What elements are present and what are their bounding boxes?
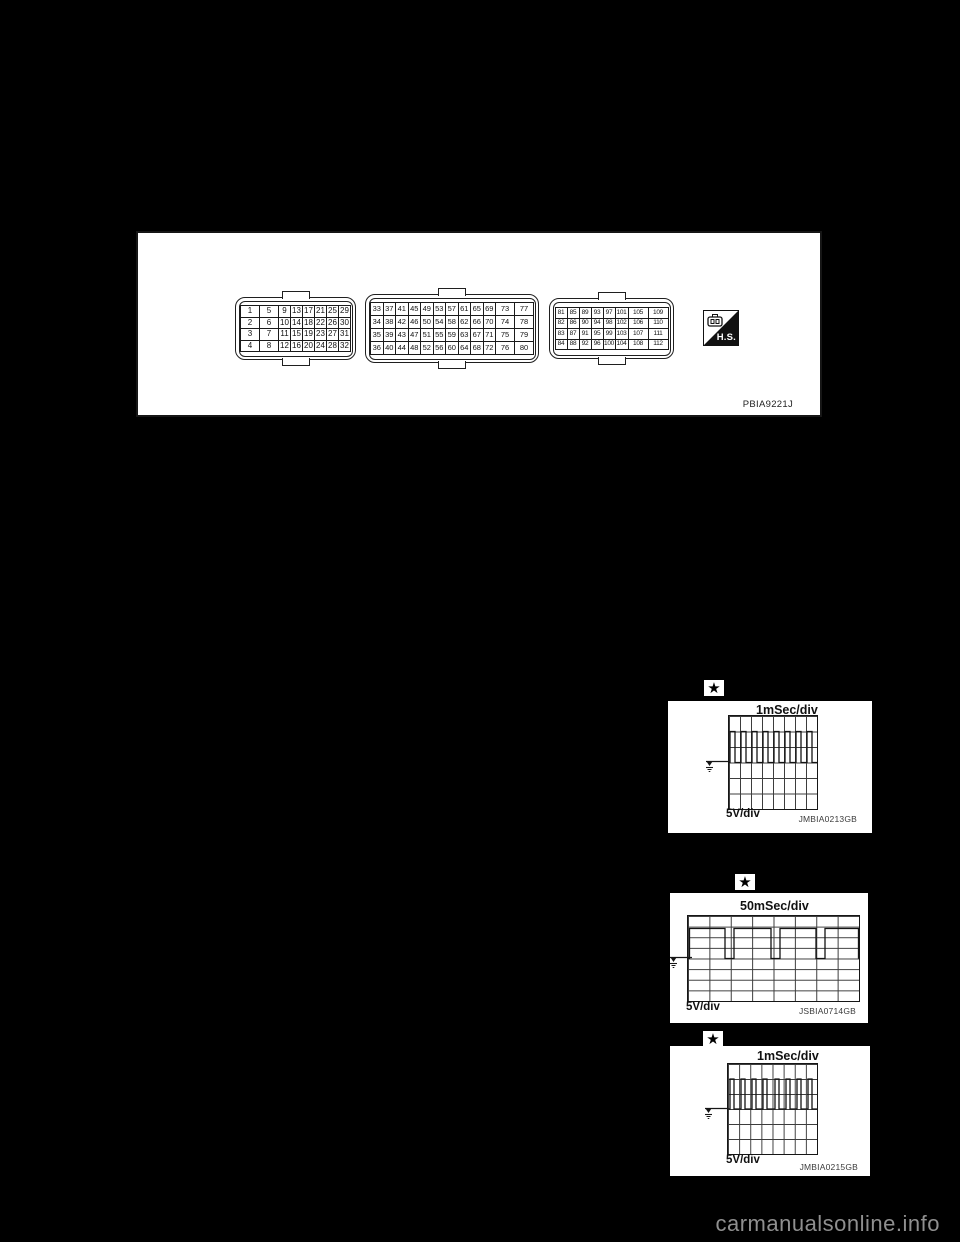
pin-14: 14 — [291, 317, 303, 329]
pin-23: 23 — [315, 329, 327, 341]
pin-76: 76 — [496, 342, 515, 355]
ecm-connector-c: 8185899397101105109828690949810210611083… — [549, 298, 674, 359]
pin-39: 39 — [383, 329, 396, 342]
pin-27: 27 — [327, 329, 339, 341]
pin-26: 26 — [327, 317, 339, 329]
pin-98: 98 — [603, 318, 615, 329]
pin-92: 92 — [579, 339, 591, 350]
pin-54: 54 — [433, 316, 446, 329]
oscilloscope-panel-2: 50mSec/div 5V/div JSBIA0714GB — [670, 893, 868, 1023]
pin-25: 25 — [327, 306, 339, 318]
pin-69: 69 — [483, 303, 496, 316]
pin-53: 53 — [433, 303, 446, 316]
pin-49: 49 — [421, 303, 434, 316]
oscilloscope-panel-3: 1mSec/div 5V/div JMBIA0215GB — [670, 1046, 870, 1176]
oscilloscope-panel-1: 1mSec/div 5V/div JMBIA0213GB — [668, 701, 872, 833]
volts-per-div-label: 5V/div — [726, 808, 760, 820]
pin-75: 75 — [496, 329, 515, 342]
pin-57: 57 — [446, 303, 459, 316]
pin-46: 46 — [408, 316, 421, 329]
hs-label: H.S. — [717, 332, 736, 343]
scope-grid — [727, 1063, 818, 1155]
pin-12: 12 — [279, 340, 291, 352]
ecm-connector-b: 3337414549535761656973773438424650545862… — [365, 294, 539, 363]
connector-tab — [598, 357, 626, 365]
pin-81: 81 — [555, 308, 567, 319]
trace-code: JSBIA0714GB — [799, 1006, 856, 1016]
connector-tab — [282, 291, 310, 299]
pin-35: 35 — [371, 329, 384, 342]
pin-102: 102 — [615, 318, 628, 329]
pin-110: 110 — [648, 318, 668, 329]
pin-42: 42 — [396, 316, 409, 329]
pin-45: 45 — [408, 303, 421, 316]
pin-grid-b: 3337414549535761656973773438424650545862… — [370, 302, 534, 355]
pin-56: 56 — [433, 342, 446, 355]
pin-6: 6 — [260, 317, 279, 329]
pin-105: 105 — [628, 308, 648, 319]
pin-100: 100 — [603, 339, 615, 350]
pin-108: 108 — [628, 339, 648, 350]
pin-107: 107 — [628, 329, 648, 340]
pin-43: 43 — [396, 329, 409, 342]
connector-tab — [598, 292, 626, 300]
pin-68: 68 — [471, 342, 484, 355]
pin-96: 96 — [591, 339, 603, 350]
pin-86: 86 — [567, 318, 579, 329]
watermark-link[interactable]: carmanualsonline.info — [715, 1211, 940, 1237]
waveform-trace — [729, 716, 817, 809]
pin-97: 97 — [603, 308, 615, 319]
connector-tab — [282, 358, 310, 366]
pin-15: 15 — [291, 329, 303, 341]
pin-88: 88 — [567, 339, 579, 350]
pin-66: 66 — [471, 316, 484, 329]
ecm-connector-a: 1591317212529261014182226303711151923273… — [235, 297, 356, 360]
pin-3: 3 — [241, 329, 260, 341]
pin-50: 50 — [421, 316, 434, 329]
scope-grid — [728, 715, 818, 810]
volts-per-div-label: 5V/div — [726, 1154, 760, 1166]
pin-11: 11 — [279, 329, 291, 341]
pin-71: 71 — [483, 329, 496, 342]
pin-48: 48 — [408, 342, 421, 355]
pin-16: 16 — [291, 340, 303, 352]
ground-icon — [666, 950, 692, 970]
pin-40: 40 — [383, 342, 396, 355]
pin-106: 106 — [628, 318, 648, 329]
scope-grid — [687, 915, 860, 1002]
time-per-div-label: 50mSec/div — [740, 899, 809, 913]
pin-59: 59 — [446, 329, 459, 342]
pin-21: 21 — [315, 306, 327, 318]
pin-22: 22 — [315, 317, 327, 329]
pin-73: 73 — [496, 303, 515, 316]
pin-70: 70 — [483, 316, 496, 329]
time-per-div-label: 1mSec/div — [757, 1049, 819, 1063]
pin-1: 1 — [241, 306, 260, 318]
pin-grid-c: 8185899397101105109828690949810210611083… — [555, 307, 669, 350]
star-icon: ★ — [704, 680, 724, 696]
pin-37: 37 — [383, 303, 396, 316]
pin-84: 84 — [555, 339, 567, 350]
pin-38: 38 — [383, 316, 396, 329]
pin-34: 34 — [371, 316, 384, 329]
pin-30: 30 — [339, 317, 351, 329]
pin-91: 91 — [579, 329, 591, 340]
pin-47: 47 — [408, 329, 421, 342]
volts-per-div-label: 5V/div — [686, 1001, 720, 1013]
ecm-connector-figure: 1591317212529261014182226303711151923273… — [136, 231, 822, 417]
pin-94: 94 — [591, 318, 603, 329]
pin-85: 85 — [567, 308, 579, 319]
pin-58: 58 — [446, 316, 459, 329]
pin-9: 9 — [279, 306, 291, 318]
pin-10: 10 — [279, 317, 291, 329]
pin-52: 52 — [421, 342, 434, 355]
pin-111: 111 — [648, 329, 668, 340]
pin-74: 74 — [496, 316, 515, 329]
hs-icon: H.S. — [703, 310, 739, 346]
pin-79: 79 — [515, 329, 534, 342]
pin-28: 28 — [327, 340, 339, 352]
pin-62: 62 — [458, 316, 471, 329]
manual-page: 1591317212529261014182226303711151923273… — [0, 0, 960, 1242]
pin-36: 36 — [371, 342, 384, 355]
pin-51: 51 — [421, 329, 434, 342]
connector-tab — [438, 288, 466, 296]
pin-4: 4 — [241, 340, 260, 352]
pin-32: 32 — [339, 340, 351, 352]
pin-17: 17 — [303, 306, 315, 318]
pin-grid-a: 1591317212529261014182226303711151923273… — [240, 305, 351, 352]
waveform-trace — [728, 1064, 817, 1154]
pin-5: 5 — [260, 306, 279, 318]
pin-77: 77 — [515, 303, 534, 316]
trace-code: JMBIA0215GB — [800, 1162, 858, 1172]
pin-44: 44 — [396, 342, 409, 355]
pin-83: 83 — [555, 329, 567, 340]
pin-87: 87 — [567, 329, 579, 340]
pin-31: 31 — [339, 329, 351, 341]
pin-95: 95 — [591, 329, 603, 340]
ground-icon — [702, 754, 728, 774]
pin-33: 33 — [371, 303, 384, 316]
figure-code: PBIA9221J — [743, 399, 793, 410]
ground-icon — [701, 1101, 727, 1121]
pin-24: 24 — [315, 340, 327, 352]
pin-64: 64 — [458, 342, 471, 355]
pin-8: 8 — [260, 340, 279, 352]
pin-80: 80 — [515, 342, 534, 355]
pin-2: 2 — [241, 317, 260, 329]
pin-29: 29 — [339, 306, 351, 318]
pin-19: 19 — [303, 329, 315, 341]
pin-18: 18 — [303, 317, 315, 329]
pin-63: 63 — [458, 329, 471, 342]
pin-109: 109 — [648, 308, 668, 319]
pin-67: 67 — [471, 329, 484, 342]
pin-112: 112 — [648, 339, 668, 350]
pin-93: 93 — [591, 308, 603, 319]
star-icon: ★ — [703, 1031, 723, 1047]
pin-101: 101 — [615, 308, 628, 319]
pin-78: 78 — [515, 316, 534, 329]
pin-60: 60 — [446, 342, 459, 355]
pin-99: 99 — [603, 329, 615, 340]
pin-82: 82 — [555, 318, 567, 329]
pin-55: 55 — [433, 329, 446, 342]
pin-104: 104 — [615, 339, 628, 350]
pin-20: 20 — [303, 340, 315, 352]
pin-89: 89 — [579, 308, 591, 319]
star-icon: ★ — [735, 874, 755, 890]
pin-103: 103 — [615, 329, 628, 340]
pin-90: 90 — [579, 318, 591, 329]
connector-tab — [438, 361, 466, 369]
pin-7: 7 — [260, 329, 279, 341]
pin-41: 41 — [396, 303, 409, 316]
trace-code: JMBIA0213GB — [799, 814, 857, 824]
pin-72: 72 — [483, 342, 496, 355]
pin-65: 65 — [471, 303, 484, 316]
waveform-trace — [688, 916, 859, 1001]
pin-13: 13 — [291, 306, 303, 318]
pin-61: 61 — [458, 303, 471, 316]
